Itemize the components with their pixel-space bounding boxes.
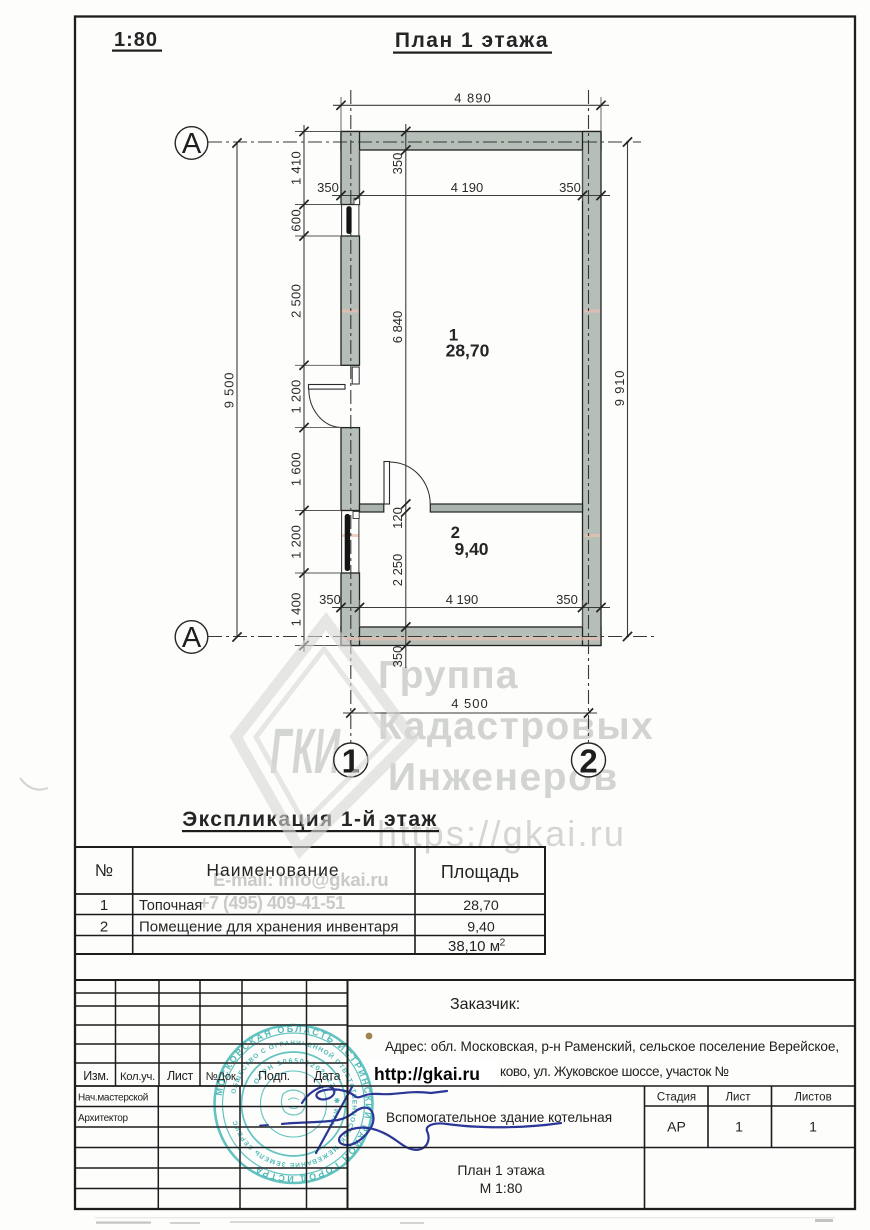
svg-text:Архитектор: Архитектор: [78, 1113, 129, 1124]
svg-text:350: 350: [390, 646, 405, 668]
svg-text:Адрес: обл. Московская, р-н Ра: Адрес: обл. Московская, р-н Раменский, с…: [385, 1039, 839, 1054]
svg-text:1 200: 1 200: [289, 379, 304, 413]
svg-text:2 500: 2 500: [289, 284, 304, 318]
svg-text:1 410: 1 410: [289, 151, 304, 185]
svg-text:Кол.уч.: Кол.уч.: [120, 1071, 155, 1083]
svg-text:9 910: 9 910: [612, 370, 627, 407]
svg-text:28,70: 28,70: [446, 341, 490, 361]
svg-text:А: А: [182, 128, 202, 160]
svg-text:4 890: 4 890: [454, 91, 492, 106]
svg-text:Стадия: Стадия: [657, 1092, 696, 1104]
svg-text:+7 (495) 409-41-51: +7 (495) 409-41-51: [199, 893, 345, 913]
svg-text:А: А: [182, 622, 202, 654]
svg-text:2: 2: [500, 937, 506, 949]
svg-text:http://gkai.ru: http://gkai.ru: [374, 1064, 480, 1084]
svg-text:600: 600: [289, 209, 304, 232]
svg-text:План 1 этажа: План 1 этажа: [395, 29, 549, 52]
svg-text:План 1 этажа: План 1 этажа: [457, 1162, 545, 1178]
svg-text:Лист: Лист: [726, 1092, 752, 1104]
svg-text:9,40: 9,40: [467, 920, 495, 936]
svg-text:350: 350: [556, 592, 578, 607]
svg-text:2: 2: [579, 743, 597, 780]
svg-text:350: 350: [559, 180, 581, 195]
svg-text:2: 2: [100, 919, 108, 936]
svg-text:6 840: 6 840: [390, 311, 405, 344]
svg-text:350: 350: [319, 592, 341, 607]
svg-text:1: 1: [735, 1119, 743, 1135]
svg-text:Нач.мастерской: Нач.мастерской: [78, 1093, 148, 1104]
svg-text:1 200: 1 200: [289, 525, 304, 559]
svg-text:4 190: 4 190: [451, 180, 484, 195]
svg-text:1 600: 1 600: [289, 452, 304, 486]
svg-text:№: №: [95, 861, 113, 880]
svg-text:28,70: 28,70: [463, 898, 499, 914]
svg-text:АР: АР: [667, 1119, 686, 1135]
svg-text:1: 1: [809, 1119, 817, 1135]
svg-text:Вспомогательное здание котельн: Вспомогательное здание котельная: [386, 1110, 612, 1125]
svg-text:4 500: 4 500: [451, 696, 489, 711]
svg-text:Листов: Листов: [794, 1092, 831, 1104]
svg-text:350: 350: [390, 153, 405, 175]
svg-text:350: 350: [317, 180, 339, 195]
svg-text:120: 120: [390, 507, 405, 529]
svg-text:ково, ул. Жуковское шоссе, уча: ково, ул. Жуковское шоссе, участок №: [500, 1064, 729, 1079]
svg-text:Заказчик:: Заказчик:: [450, 996, 520, 1013]
svg-text:Изм.: Изм.: [83, 1069, 109, 1083]
svg-text:М 1:80: М 1:80: [480, 1180, 523, 1196]
svg-text:38,10 м: 38,10 м: [448, 938, 500, 955]
svg-text:Площадь: Площадь: [441, 862, 519, 882]
svg-text:1 400: 1 400: [289, 592, 304, 626]
svg-text:1: 1: [100, 897, 108, 914]
svg-text:9 500: 9 500: [222, 372, 237, 409]
svg-text:Топочная: Топочная: [139, 898, 202, 914]
svg-text:2 250: 2 250: [390, 554, 405, 587]
svg-text:1:80: 1:80: [114, 29, 158, 51]
svg-text:Помещение для хранения инвента: Помещение для хранения инвентаря: [139, 919, 398, 936]
svg-text:9,40: 9,40: [454, 539, 488, 559]
svg-text:4 190: 4 190: [446, 592, 479, 607]
svg-text:Лист: Лист: [167, 1069, 194, 1083]
svg-text:Наименование: Наименование: [206, 860, 339, 880]
svg-text:Кадастровых: Кадастровых: [378, 705, 654, 748]
